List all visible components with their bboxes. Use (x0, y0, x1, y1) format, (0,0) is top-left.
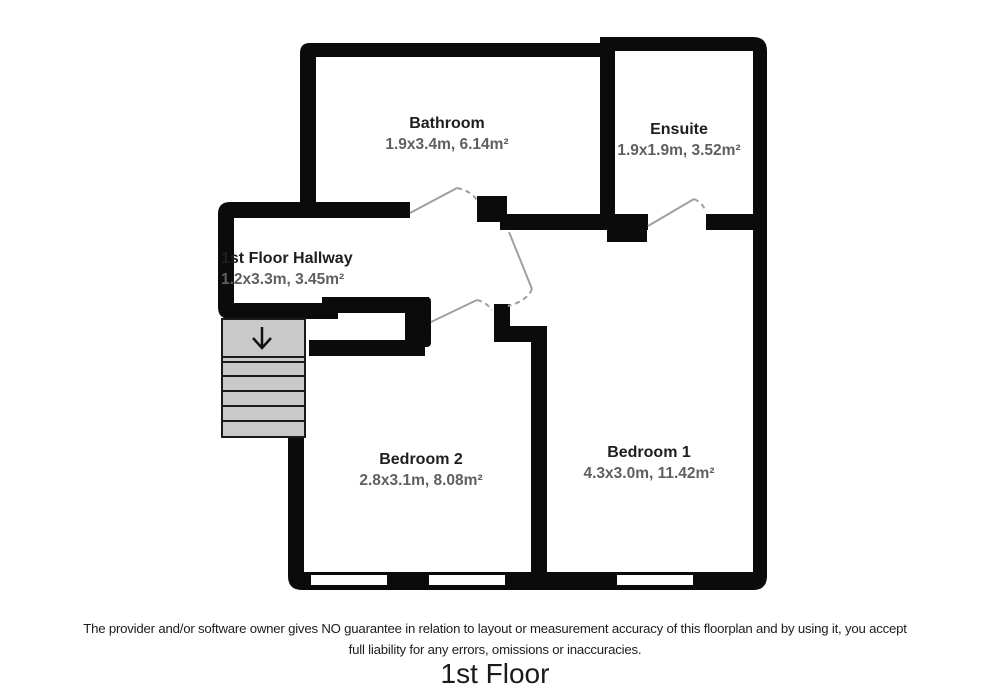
disclaimer-line-2: full liability for any errors, omissions… (0, 639, 990, 660)
room-label-ensuite: Ensuite 1.9x1.9m, 3.52m² (617, 119, 740, 161)
floor-title: 1st Floor (0, 658, 990, 690)
window-bedroom2-right (428, 574, 506, 586)
room-label-bedroom2: Bedroom 2 2.8x3.1m, 8.08m² (359, 449, 482, 491)
wall-bathroom-door-stub (477, 196, 507, 222)
stairs (222, 319, 305, 437)
bedroom1-door-arc (508, 289, 532, 306)
door-swings (410, 188, 706, 322)
window-bedroom1 (616, 574, 694, 586)
wall-mid-horizontal (500, 214, 648, 230)
floorplan-page: Bathroom 1.9x3.4m, 6.14m² Ensuite 1.9x1.… (0, 0, 990, 700)
room-dimensions: 4.3x3.0m, 11.42m² (584, 463, 715, 484)
room-label-hallway: 1st Floor Hallway 1.2x3.3m, 3.45m² (221, 248, 353, 290)
bedroom1-door-leaf (509, 232, 532, 289)
ensuite-door-leaf (648, 199, 694, 226)
stairs-body (222, 319, 305, 437)
windows (310, 574, 694, 586)
bathroom-door-leaf (410, 188, 457, 213)
room-label-bathroom: Bathroom 1.9x3.4m, 6.14m² (385, 113, 508, 155)
bedroom2-door-leaf (431, 300, 477, 322)
wall-stairvoid-cap (405, 297, 431, 347)
disclaimer-line-1: The provider and/or software owner gives… (0, 618, 990, 639)
room-name: Ensuite (617, 119, 740, 140)
room-dimensions: 1.9x3.4m, 6.14m² (385, 134, 508, 155)
room-name: Bedroom 1 (584, 442, 715, 463)
wall-bath-ensuite-divider (600, 51, 615, 219)
floorplan-drawing (0, 0, 990, 700)
ensuite-door-arc (694, 199, 706, 212)
room-name: Bathroom (385, 113, 508, 134)
window-bedroom2-left (310, 574, 388, 586)
wall-stairvoid-bottom (309, 340, 425, 356)
room-name: Bedroom 2 (359, 449, 482, 470)
room-dimensions: 1.2x3.3m, 3.45m² (221, 269, 353, 290)
wall-bedroom-divider (531, 326, 547, 572)
wall-ensuite-door-jamb (607, 230, 647, 242)
room-dimensions: 1.9x1.9m, 3.52m² (617, 140, 740, 161)
bedroom2-door-arc (477, 300, 492, 310)
disclaimer-text: The provider and/or software owner gives… (0, 618, 990, 660)
wall-ensuite-bottom-right (706, 214, 753, 230)
room-label-bedroom1: Bedroom 1 4.3x3.0m, 11.42m² (584, 442, 715, 484)
bathroom-door-arc (457, 188, 478, 202)
room-dimensions: 2.8x3.1m, 8.08m² (359, 470, 482, 491)
room-name: 1st Floor Hallway (221, 248, 353, 269)
